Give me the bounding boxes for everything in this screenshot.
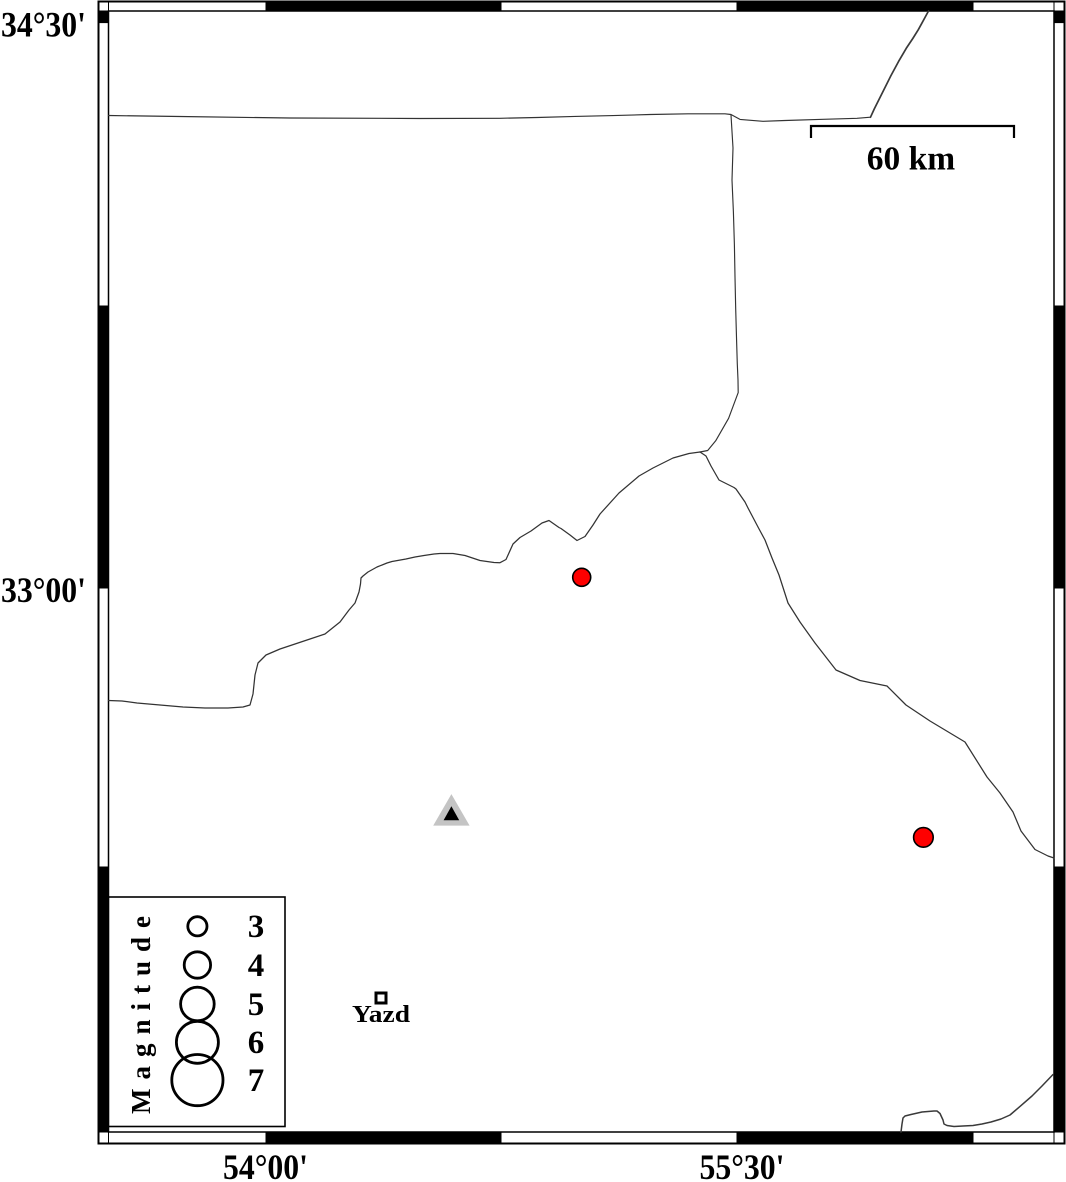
svg-text:7: 7 (248, 1063, 265, 1099)
svg-text:5: 5 (248, 987, 265, 1023)
svg-text:Magnitude: Magnitude (126, 907, 156, 1114)
svg-text:4: 4 (248, 948, 265, 984)
svg-text:54°00': 54°00' (223, 1147, 308, 1182)
svg-text:60 km: 60 km (867, 141, 956, 178)
svg-text:3: 3 (248, 909, 265, 945)
svg-text:55°30': 55°30' (700, 1147, 785, 1182)
svg-text:Yazd: Yazd (352, 1002, 411, 1028)
svg-text:6: 6 (248, 1025, 265, 1061)
svg-text:33°00': 33°00' (1, 570, 86, 610)
svg-text:34°30': 34°30' (1, 5, 86, 45)
